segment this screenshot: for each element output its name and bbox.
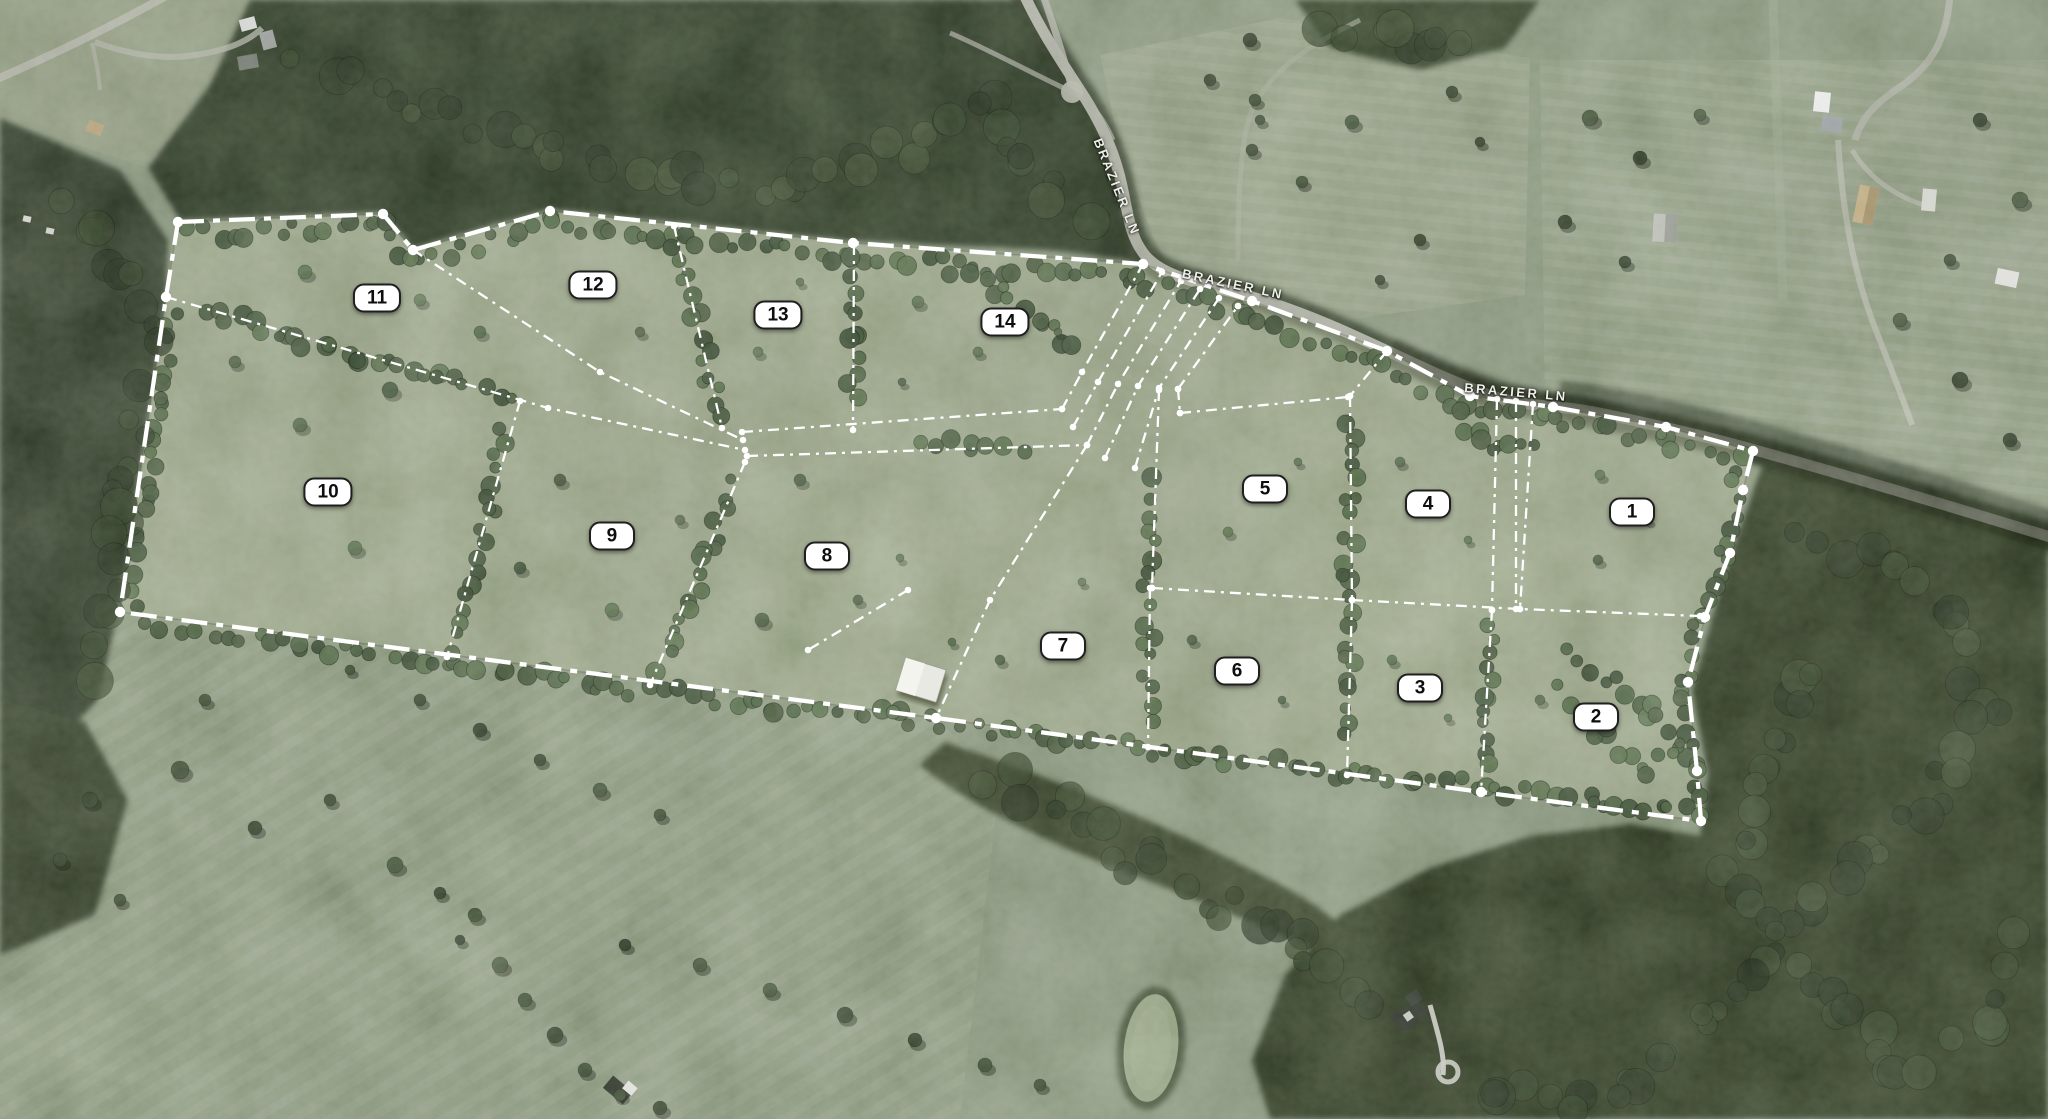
lot-label-1[interactable]: 1: [1609, 498, 1655, 527]
lot-label-12[interactable]: 12: [569, 271, 618, 300]
lot-label-6[interactable]: 6: [1214, 656, 1260, 685]
lot-label-11[interactable]: 11: [353, 283, 401, 312]
aerial-plat-map: 1234567891011121314BRAZIER LNBRAZIER LNB…: [0, 0, 2048, 1119]
satellite-plat-svg: [0, 0, 2048, 1119]
lot-label-2[interactable]: 2: [1573, 703, 1619, 732]
lot-label-14[interactable]: 14: [980, 308, 1029, 337]
texture-noise-blotch: [0, 0, 2048, 1119]
lot-label-3[interactable]: 3: [1397, 673, 1443, 702]
lot-label-5[interactable]: 5: [1242, 475, 1288, 504]
lot-label-10[interactable]: 10: [304, 478, 353, 507]
lot-label-9[interactable]: 9: [589, 522, 635, 551]
lot-label-7[interactable]: 7: [1040, 631, 1086, 660]
lot-label-4[interactable]: 4: [1405, 489, 1451, 518]
lot-label-8[interactable]: 8: [804, 542, 850, 571]
lot-label-13[interactable]: 13: [753, 300, 802, 329]
